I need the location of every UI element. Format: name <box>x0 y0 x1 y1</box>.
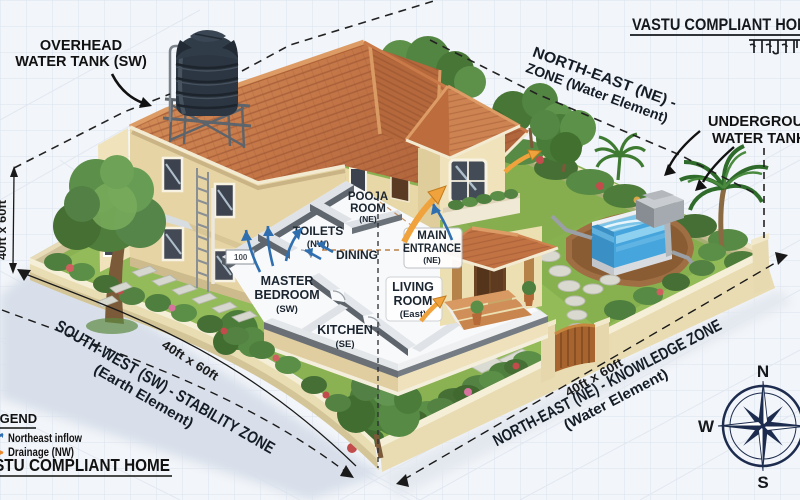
svg-text:(NE): (NE) <box>423 255 441 265</box>
svg-text:Northeast inflow: Northeast inflow <box>8 433 82 445</box>
svg-text:100: 100 <box>234 253 248 262</box>
svg-text:MASTER: MASTER <box>261 274 314 288</box>
svg-text:ROOM: ROOM <box>394 294 433 308</box>
svg-text:WATER TANK (N: WATER TANK (N <box>712 131 800 147</box>
svg-text:(SE): (SE) <box>336 339 355 350</box>
svg-text:VASTU COMPLIANT HOME: VASTU COMPLIANT HOME <box>632 16 800 34</box>
svg-text:ENTRANCE: ENTRANCE <box>403 243 461 255</box>
svg-text:W: W <box>698 417 715 436</box>
svg-text:BEDROOM: BEDROOM <box>254 288 319 302</box>
svg-text:S: S <box>757 473 768 492</box>
svg-text:(SW): (SW) <box>276 304 298 315</box>
svg-text:40ft x 60ft: 40ft x 60ft <box>0 200 9 260</box>
svg-text:DINING: DINING <box>336 248 378 262</box>
svg-text:N: N <box>757 362 769 381</box>
svg-text:MAIN: MAIN <box>417 230 446 242</box>
svg-text:UNDERGROUND: UNDERGROUND <box>708 114 800 130</box>
svg-text:POOJA: POOJA <box>348 191 388 203</box>
svg-text:KITCHEN: KITCHEN <box>317 323 373 337</box>
svg-text:VASTU COMPLIANT HOME: VASTU COMPLIANT HOME <box>0 455 170 475</box>
svg-text:LEGEND: LEGEND <box>0 411 37 426</box>
svg-text:LIVING: LIVING <box>392 280 434 294</box>
svg-text:WATER TANK (SW): WATER TANK (SW) <box>15 54 147 70</box>
svg-text:(NE): (NE) <box>359 214 377 224</box>
svg-text:OVERHEAD: OVERHEAD <box>40 38 122 54</box>
